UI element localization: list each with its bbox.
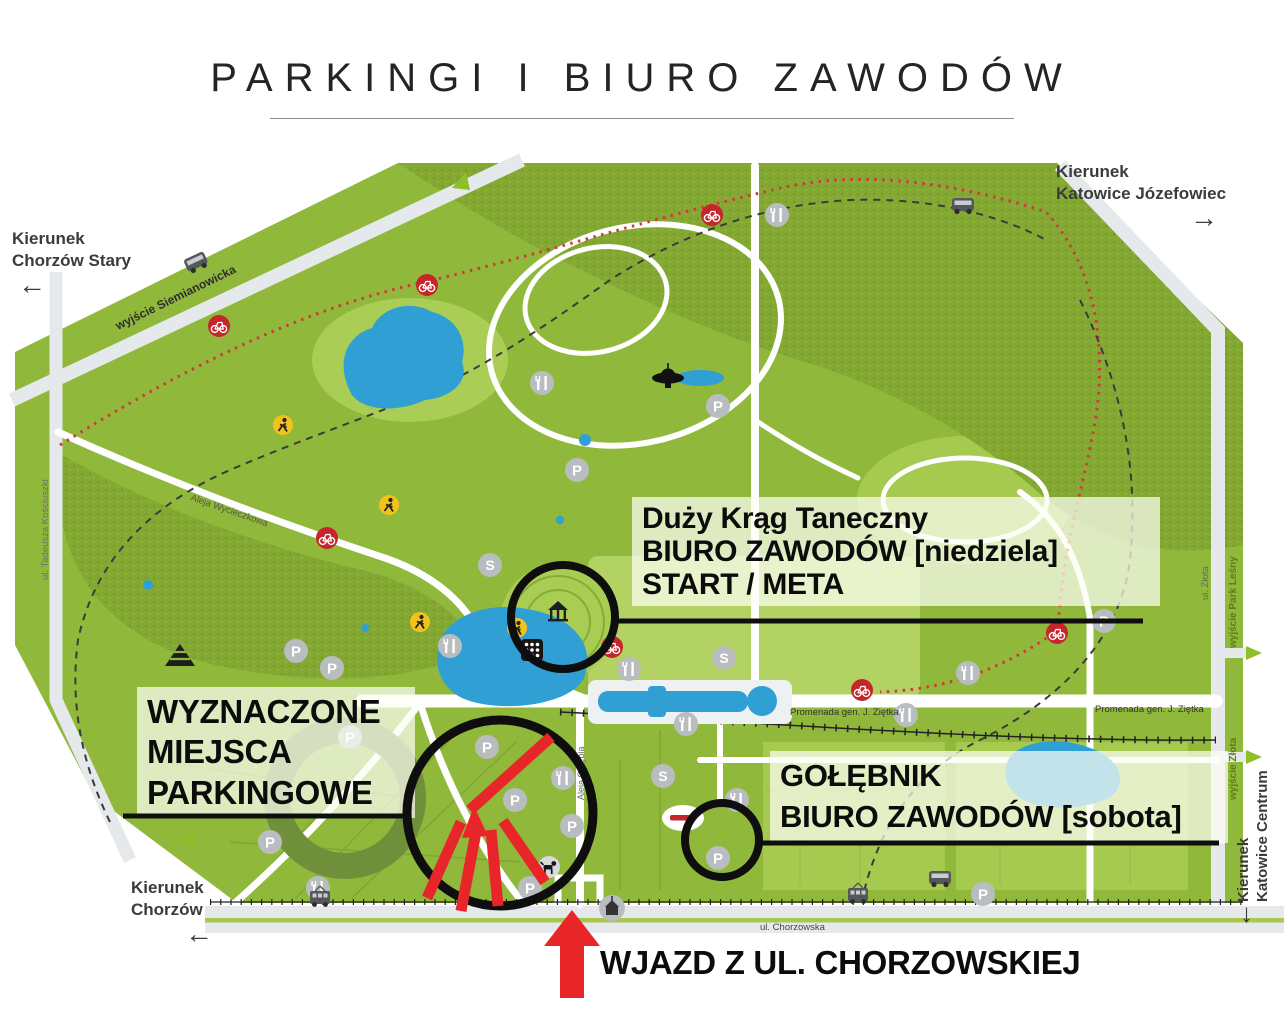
bike-icon [208, 315, 230, 337]
parking-icon [706, 846, 730, 870]
parking-line-3: PARKINGOWE [147, 773, 405, 813]
restaurant-icon [617, 657, 641, 681]
parking-icon [706, 394, 730, 418]
direction-line: Kierunek [12, 228, 131, 250]
parking-icon [560, 814, 584, 838]
logo-oval-icon [662, 805, 704, 831]
restaurant-icon [765, 203, 789, 227]
runner-icon [379, 495, 399, 515]
parking-icon [565, 458, 589, 482]
bike-icon [1046, 622, 1068, 644]
direction-line: Katowice Centrum [1253, 742, 1272, 902]
restaurant-icon [725, 788, 749, 812]
direction-chorzow-stary: Kierunek Chorzów Stary ← [12, 228, 131, 297]
parking-icon [518, 876, 542, 900]
road-chorzowska [205, 906, 1284, 933]
saturday-line-2: BIURO ZAWODÓW [sobota] [780, 797, 1218, 838]
building-icon [599, 895, 625, 921]
restaurant-icon [674, 712, 698, 736]
restaurant-icon [438, 634, 462, 658]
arrow-right-icon: → [1190, 205, 1226, 230]
sports-icon [712, 646, 736, 670]
parking-line-2: MIEJSCA [147, 732, 405, 772]
direction-katowice-jozefowiec: Kierunek Katowice Józefowiec → [1056, 161, 1226, 230]
parking-icon [1092, 609, 1116, 633]
bike-icon [601, 636, 623, 658]
street-label-promenada: Promenada gen. J. Ziętka [790, 707, 899, 718]
direction-katowice-centrum: Kierunek Katowice Centrum [1234, 742, 1272, 902]
bike-icon [416, 274, 438, 296]
sunday-line-1: Duży Krąg Taneczny [642, 502, 1150, 535]
saturday-line-1: GOŁĘBNIK [780, 756, 1218, 797]
direction-line: Kierunek [1056, 161, 1226, 183]
bike-icon [701, 204, 723, 226]
parking-line-1: WYZNACZONE [147, 692, 405, 732]
runner-icon [507, 618, 527, 638]
dog-area-icon [538, 856, 560, 878]
parking-icon [475, 735, 499, 759]
street-label-promenada-2: Promenada gen. J. Ziętka [1095, 704, 1204, 715]
parking-icon [971, 882, 995, 906]
annotation-wjazd: WJAZD Z UL. CHORZOWSKIEJ [600, 944, 1080, 982]
runner-icon [273, 415, 293, 435]
arrow-down-icon: ↓ [1240, 898, 1253, 929]
bike-icon [851, 679, 873, 701]
restaurant-icon [530, 371, 554, 395]
street-label-zlota: ul. Złota [1200, 565, 1211, 600]
street-label-chorzowska: ul. Chorzowska [760, 922, 826, 933]
runner-icon [410, 612, 430, 632]
parking-icon [284, 639, 308, 663]
direction-chorzow: Kierunek Chorzów ← [131, 877, 213, 946]
annotation-biuro-niedziela: Duży Krąg Taneczny BIURO ZAWODÓW [niedzi… [632, 497, 1160, 606]
annotation-biuro-sobota: GOŁĘBNIK BIURO ZAWODÓW [sobota] [770, 751, 1228, 843]
parking-icon [320, 656, 344, 680]
sports-icon [478, 553, 502, 577]
bike-icon [316, 527, 338, 549]
park-map: P S [0, 0, 1284, 1036]
street-label-kosciuszki: ul. Tadeusza Kościuszki [40, 479, 51, 580]
sunday-line-3: START / META [642, 568, 1150, 601]
sports-icon [651, 764, 675, 788]
arrow-left-icon: ← [18, 272, 131, 297]
street-label-golebia: Aleja Gołębia [576, 746, 586, 800]
parking-icon [258, 830, 282, 854]
exit-label-park: wyjście Park Leśny [1228, 556, 1239, 649]
arrow-left-icon: ← [185, 921, 213, 946]
parking-icon [503, 788, 527, 812]
direction-line: Kierunek [131, 877, 213, 899]
restaurant-icon [551, 766, 575, 790]
direction-line: Kierunek [1234, 742, 1253, 902]
annotation-parking: WYZNACZONE MIEJSCA PARKINGOWE [137, 687, 415, 818]
sunday-line-2: BIURO ZAWODÓW [niedziela] [642, 535, 1150, 568]
dance-floor-icon [521, 639, 543, 661]
restaurant-icon [956, 661, 980, 685]
